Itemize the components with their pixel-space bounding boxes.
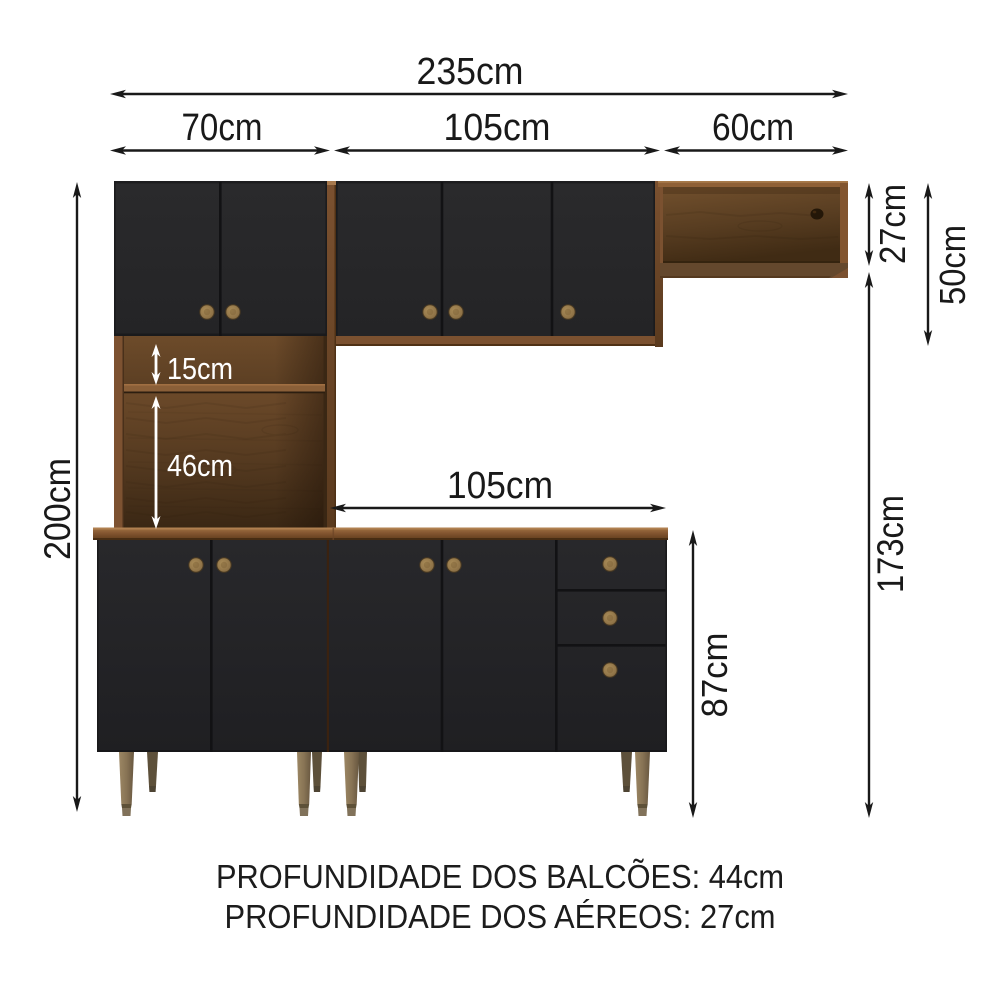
svg-text:PROFUNDIDADE DOS AÉREOS: 27cm: PROFUNDIDADE DOS AÉREOS: 27cm: [225, 898, 776, 935]
svg-text:173cm: 173cm: [870, 495, 911, 593]
svg-text:15cm: 15cm: [167, 351, 233, 386]
svg-text:70cm: 70cm: [182, 107, 263, 149]
svg-text:50cm: 50cm: [932, 225, 973, 305]
svg-text:46cm: 46cm: [167, 448, 233, 483]
svg-text:60cm: 60cm: [712, 107, 794, 149]
svg-text:105cm: 105cm: [447, 465, 553, 507]
svg-text:200cm: 200cm: [37, 458, 78, 560]
svg-text:105cm: 105cm: [444, 107, 551, 149]
svg-text:PROFUNDIDADE DOS BALCÕES: 44cm: PROFUNDIDADE DOS BALCÕES: 44cm: [216, 858, 784, 895]
svg-text:235cm: 235cm: [417, 51, 524, 93]
svg-text:87cm: 87cm: [694, 633, 735, 718]
svg-text:27cm: 27cm: [872, 184, 913, 264]
